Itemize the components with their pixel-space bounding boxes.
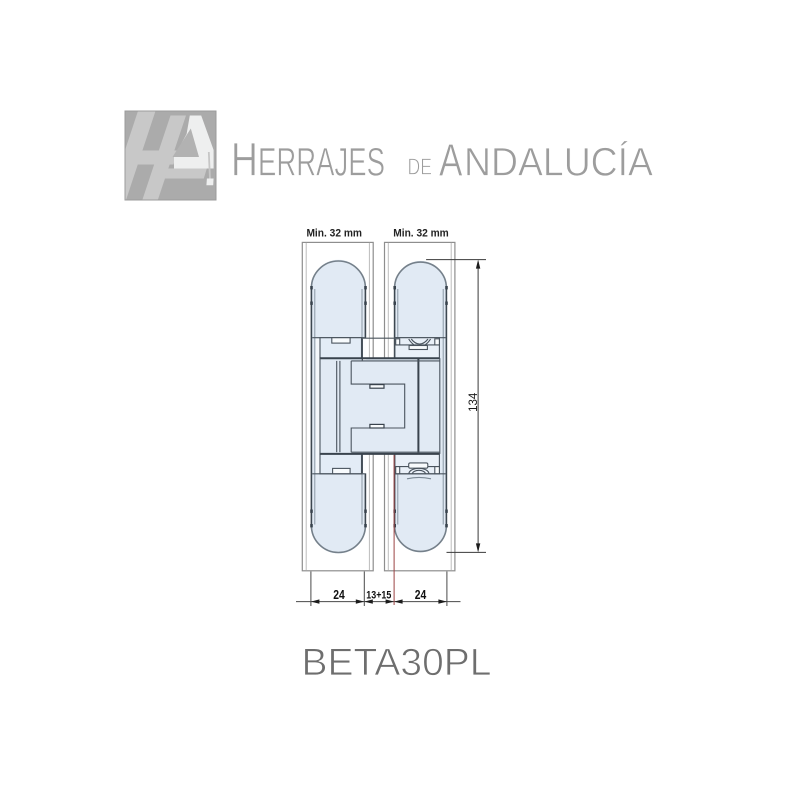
svg-text:BETA30PL: BETA30PL	[302, 642, 492, 684]
svg-text:H: H	[231, 132, 258, 185]
svg-text:13+15: 13+15	[366, 589, 391, 601]
svg-text:Min. 32 mm: Min. 32 mm	[393, 227, 449, 239]
svg-text:A: A	[439, 134, 463, 185]
svg-text:24: 24	[415, 588, 427, 602]
svg-text:DE: DE	[408, 154, 433, 180]
svg-text:NDALUCÍA: NDALUCÍA	[464, 140, 654, 184]
svg-text:Min. 32 mm: Min. 32 mm	[306, 227, 362, 239]
svg-text:24: 24	[333, 588, 345, 602]
svg-text:ERRAJES: ERRAJES	[258, 140, 385, 184]
svg-text:134: 134	[468, 392, 480, 412]
